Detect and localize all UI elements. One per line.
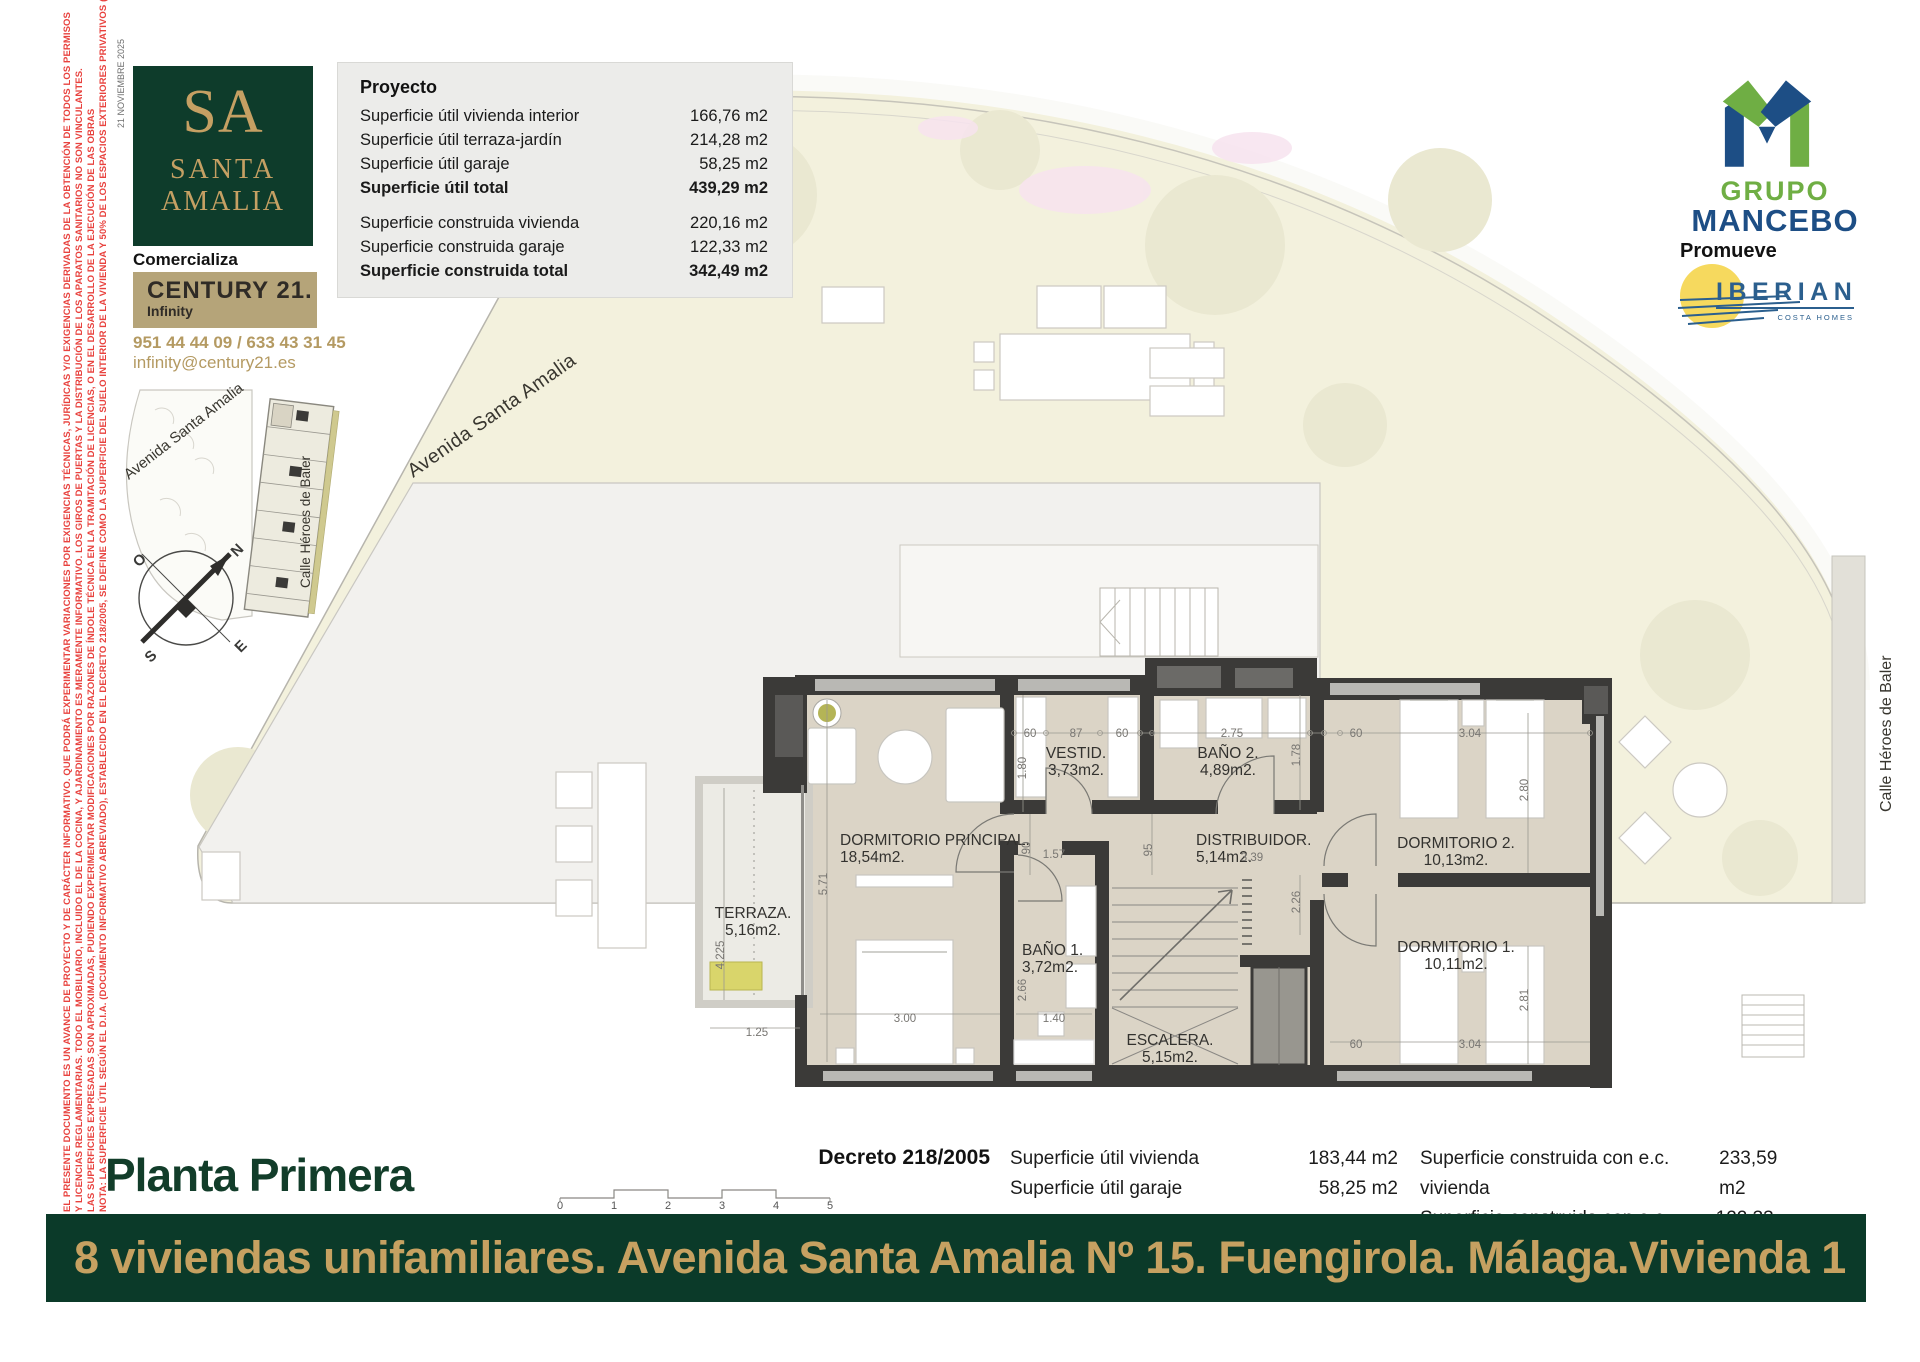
scale-tick: 5: [824, 1200, 836, 1212]
project-row: Superficie útil terraza-jardín214,28 m2: [360, 128, 768, 152]
project-surface-table: Proyecto Superficie útil vivienda interi…: [337, 62, 793, 298]
century21-office: Infinity: [147, 303, 317, 319]
room-label: BAÑO 1.3,72m2.: [1022, 942, 1083, 976]
dimension-label: 1.80: [1017, 757, 1029, 779]
sa-name-line1: SANTA: [133, 154, 313, 186]
century21-logo: CENTURY 21. Infinity: [133, 272, 317, 328]
dimension-label: 1.25: [746, 1027, 768, 1039]
dimension-label: 87: [1070, 728, 1083, 740]
room-label: TERRAZA.5,16m2.: [715, 905, 792, 939]
dimension-label: 1.78: [1291, 744, 1303, 766]
dimension-label: 3.04: [1459, 1039, 1482, 1051]
agency-phone: 951 44 44 09 / 633 43 31 45: [133, 333, 346, 353]
century21-wordmark: CENTURY 21.: [147, 277, 317, 305]
dimension-label: 60: [1024, 728, 1037, 740]
sa-name-line2: AMALIA: [133, 186, 313, 218]
dimension-label: 60: [1116, 728, 1129, 740]
sa-monogram: SA: [133, 80, 313, 144]
dimension-label: 2.66: [1017, 979, 1029, 1001]
disclaimer-line: EL PRESENTE DOCUMENTO ES UN AVANCE DE PR…: [62, 57, 74, 1212]
scale-tick: 1: [608, 1200, 620, 1212]
disclaimer-line: LAS SUPERFICIES EXPRESADAS SON APROXIMAD…: [86, 57, 98, 1212]
dimension-label: 2.80: [1519, 779, 1531, 801]
title-banner: 8 viviendas unifamiliares. Avenida Santa…: [46, 1214, 1866, 1302]
disclaimer-line: Y LICENCIAS REGLAMENTARIAS. TODO EL MOBI…: [74, 57, 86, 1212]
banner-unit: Vivienda 1: [1629, 1232, 1846, 1284]
dimension-label: 1.57: [1043, 849, 1065, 861]
dimension-label: 90: [1021, 842, 1033, 855]
floor-title: Planta Primera: [105, 1148, 413, 1202]
footer-surface-row: Superficie construida con e.c. vivienda2…: [1420, 1144, 1802, 1204]
project-row: Superficie construida garaje122,33 m2: [360, 235, 768, 259]
costa-homes-label: COSTA HOMES: [1778, 313, 1854, 322]
exterior-stair: [1100, 588, 1218, 656]
project-row: Superficie construida total342,49 m2: [360, 259, 768, 283]
project-row: Superficie útil total439,29 m2: [360, 176, 768, 200]
scale-tick: 4: [770, 1200, 782, 1212]
scale-tick: 2: [662, 1200, 674, 1212]
project-row: Superficie construida vivienda220,16 m2: [360, 211, 768, 235]
iberian-wordmark: IBERIAN: [1716, 278, 1857, 306]
comercializa-label: Comercializa: [133, 250, 238, 270]
dimension-label: 3.39: [1241, 852, 1263, 864]
dimension-label: 5.71: [818, 873, 830, 895]
dimension-label: 3.00: [894, 1013, 916, 1025]
scale-tick: 3: [716, 1200, 728, 1212]
plan-sheet: DORMITORIO PRINCIPAL.18,54m2.VESTID.3,73…: [0, 0, 1920, 1362]
dimension-label: 60: [1350, 728, 1363, 740]
elevator: [1252, 967, 1306, 1065]
date-note: 21 NOVIEMBRE 2025: [116, 58, 126, 128]
compass-rose: [130, 540, 242, 658]
decreto-label: Decreto 218/2005: [760, 1146, 990, 1170]
santa-amalia-logo: SA SANTA AMALIA: [133, 66, 313, 246]
footer-left-col: Superficie útil vivienda183,44 m2Superfi…: [1010, 1144, 1398, 1204]
street-label-sitemap: Calle Héroes de Baler: [298, 436, 313, 588]
dimension-label: 95: [1143, 844, 1155, 857]
project-row: Superficie útil vivienda interior166,76 …: [360, 104, 768, 128]
iberian-logo: IBERIAN COSTA HOMES: [1668, 258, 1878, 344]
dimension-label: 4.225: [715, 941, 727, 970]
project-table-rows: Superficie útil vivienda interior166,76 …: [360, 104, 768, 283]
dimension-label: 3.04: [1459, 728, 1482, 740]
mancebo-wordmark: MANCEBO: [1680, 203, 1870, 239]
project-table-title: Proyecto: [360, 77, 768, 98]
grupo-mancebo-icon: [1712, 72, 1822, 172]
dimension-label: 2.75: [1221, 728, 1243, 740]
dimension-label: 1.40: [1043, 1013, 1065, 1025]
dimension-label: 60: [1350, 1039, 1363, 1051]
neighbour-stair: [1742, 995, 1804, 1057]
footer-surface-row: Superficie útil garaje58,25 m2: [1010, 1174, 1398, 1204]
disclaimer-line: NOTA: LA SUPERFICIE ÚTIL SEGÚN EL D.I.A.…: [98, 57, 110, 1212]
dimension-label: 2.26: [1291, 891, 1303, 913]
banner-address: 8 viviendas unifamiliares. Avenida Santa…: [74, 1232, 1629, 1284]
legal-disclaimer: EL PRESENTE DOCUMENTO ES UN AVANCE DE PR…: [62, 57, 110, 1212]
footer-surface-row: Superficie útil vivienda183,44 m2: [1010, 1144, 1398, 1174]
room-terraza: [695, 776, 813, 1008]
right-sidewalk: [1832, 556, 1865, 903]
project-row: Superficie útil garaje58,25 m2: [360, 152, 768, 176]
scale-tick: 0: [554, 1200, 566, 1212]
room-label: BAÑO 2.4,89m2.: [1197, 745, 1258, 779]
street-label-right-edge: Calle Héroes de Baler: [1878, 640, 1896, 812]
dimension-label: 2.81: [1519, 989, 1531, 1011]
room-label: VESTID.3,73m2.: [1046, 745, 1106, 779]
